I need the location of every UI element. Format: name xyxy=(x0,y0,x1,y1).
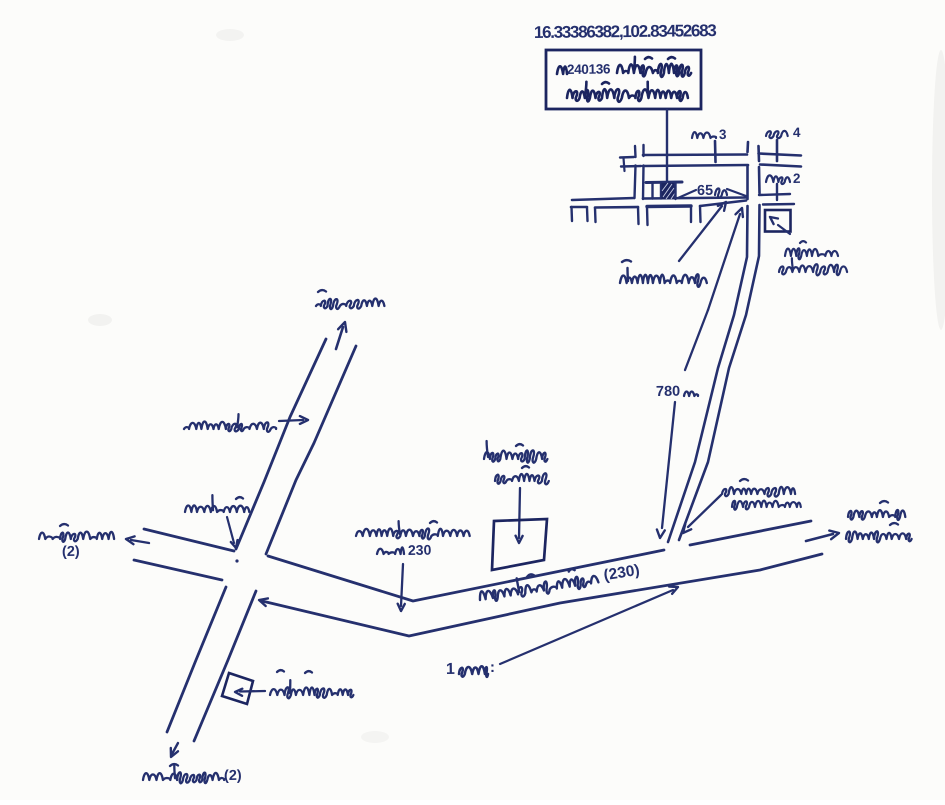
svg-text:65: 65 xyxy=(697,183,713,199)
svg-text:240136: 240136 xyxy=(567,61,611,77)
svg-text:(2): (2) xyxy=(224,768,242,784)
svg-text:(2): (2) xyxy=(62,544,80,560)
svg-text:1: 1 xyxy=(446,661,455,678)
svg-text::: : xyxy=(490,659,495,676)
svg-text:230: 230 xyxy=(408,542,432,558)
svg-text:2: 2 xyxy=(793,171,801,186)
svg-text:3: 3 xyxy=(719,127,727,142)
svg-text:780: 780 xyxy=(656,384,680,400)
svg-text:16.33386382,102.83452683: 16.33386382,102.83452683 xyxy=(534,21,717,42)
svg-text:4: 4 xyxy=(793,125,801,140)
